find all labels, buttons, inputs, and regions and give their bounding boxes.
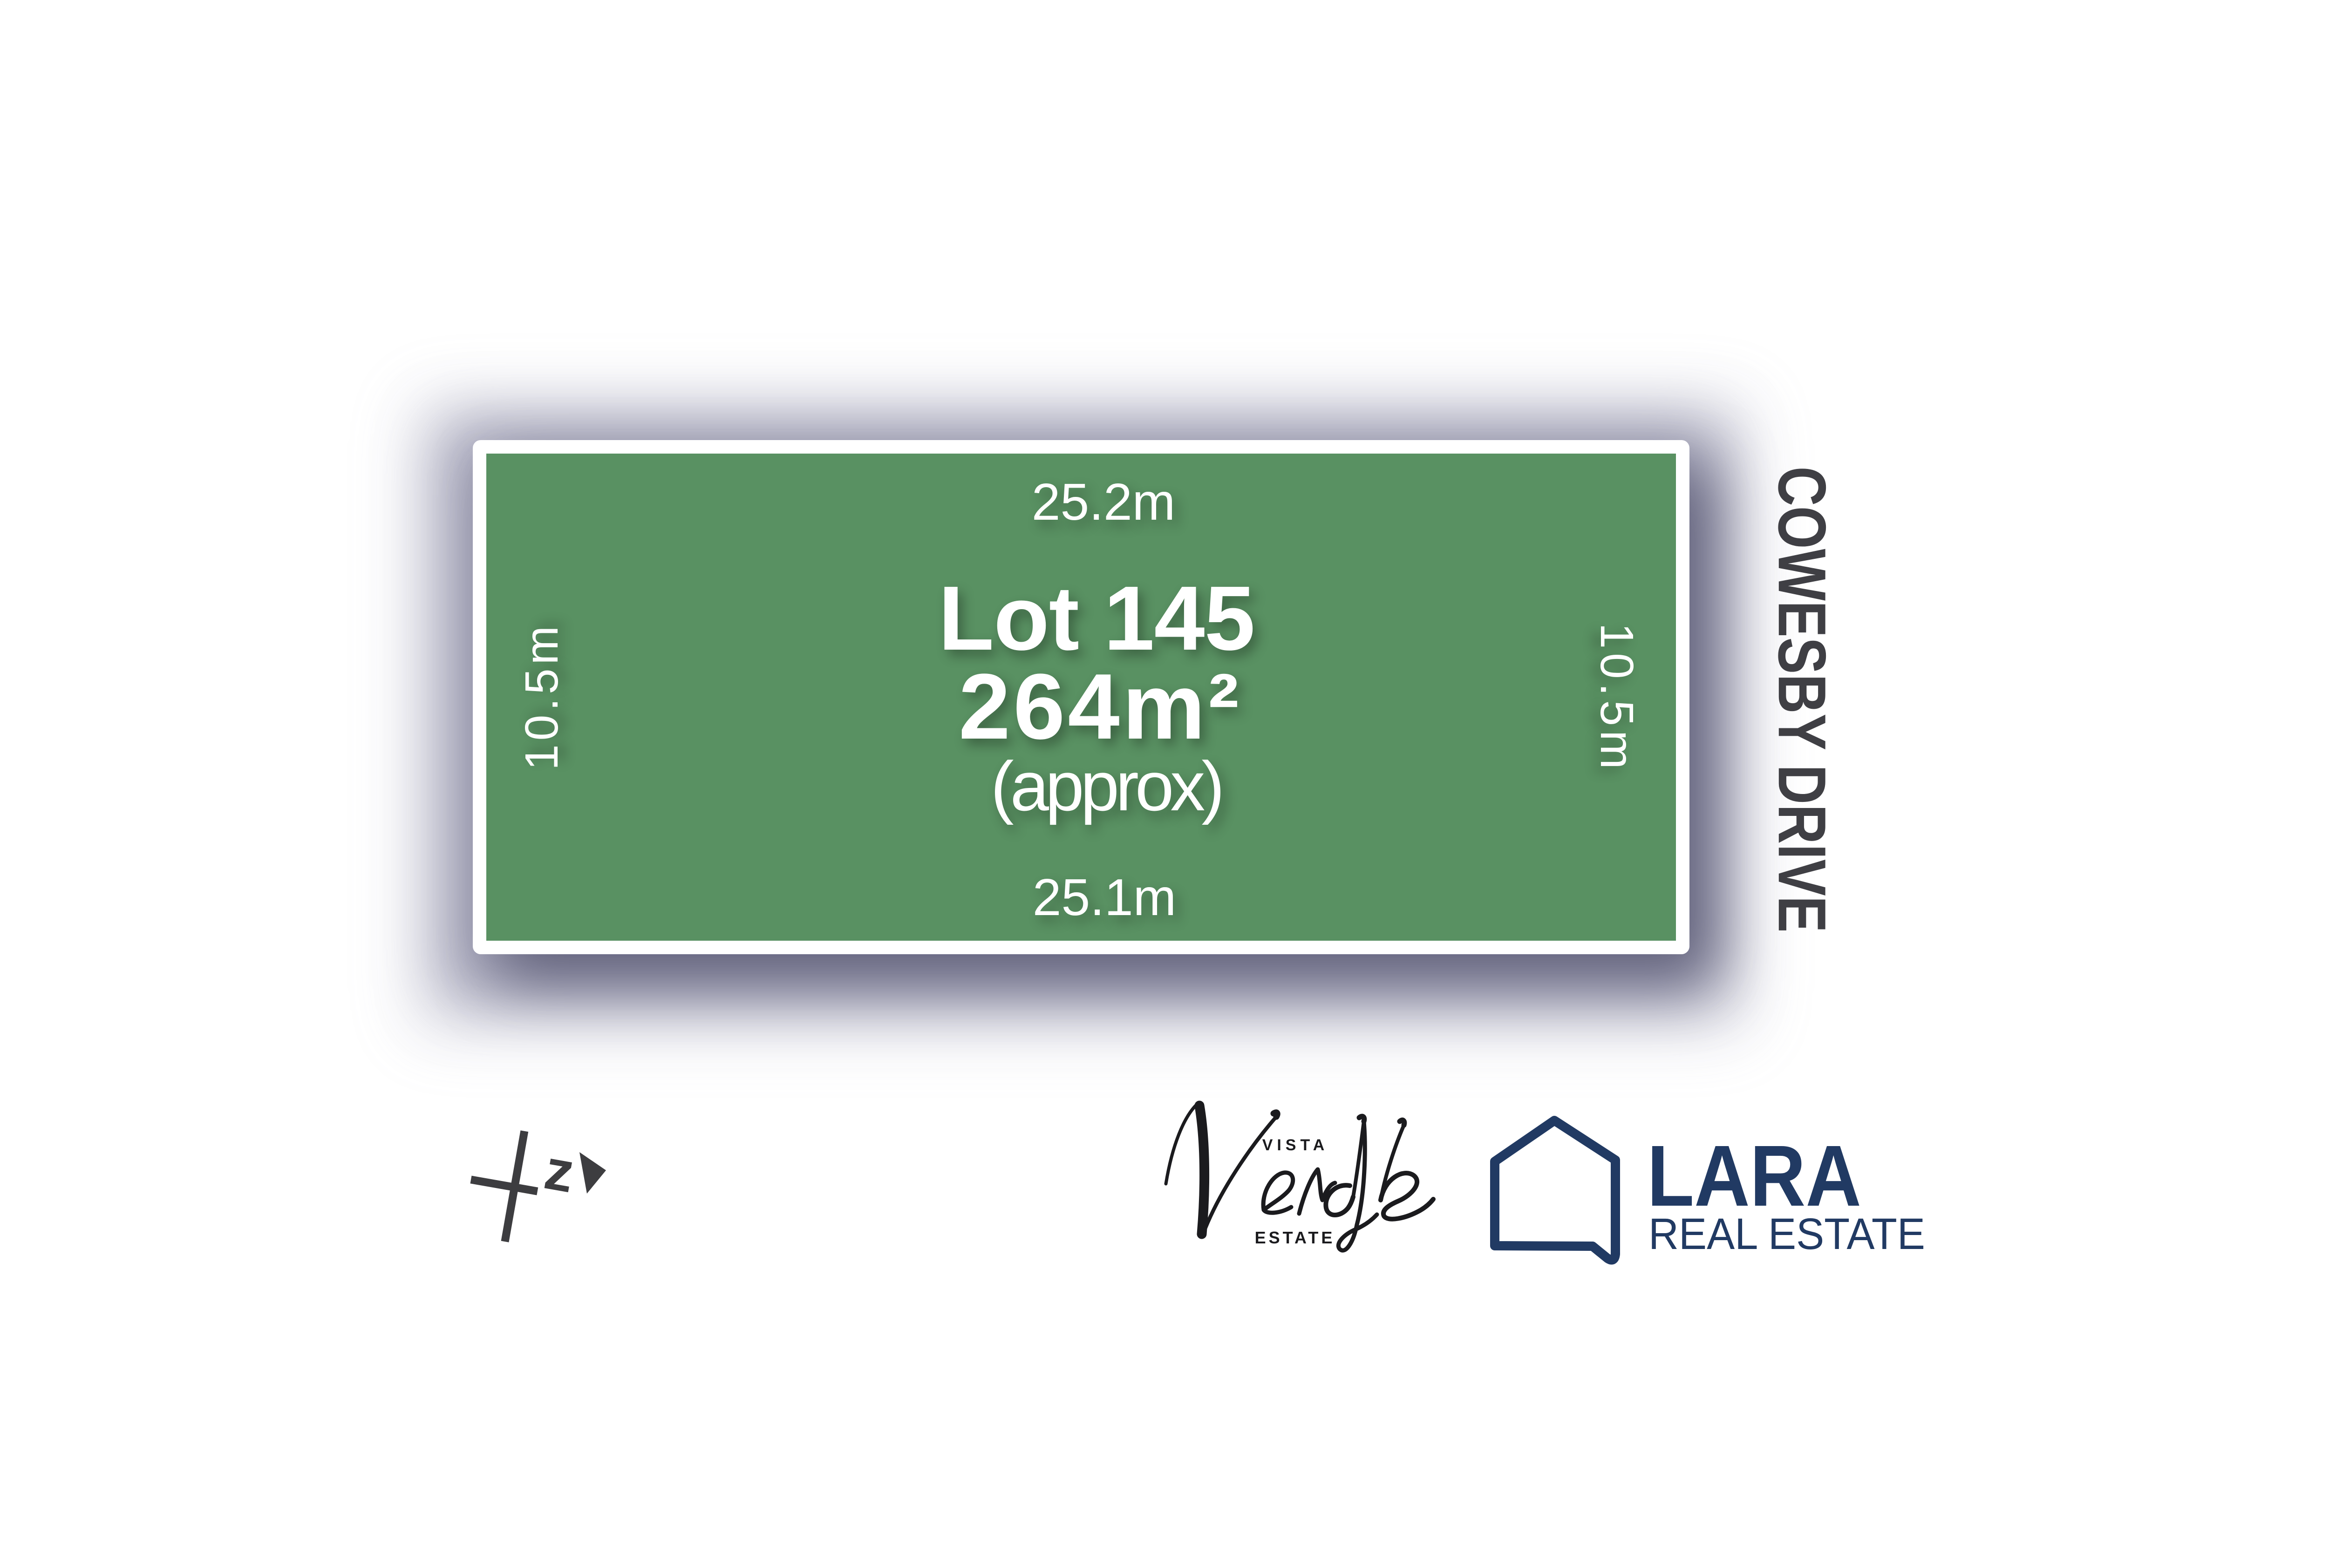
- svg-text:ESTATE: ESTATE: [1255, 1228, 1335, 1247]
- svg-text:VISTA: VISTA: [1262, 1136, 1329, 1154]
- svg-text:REAL ESTATE: REAL ESTATE: [1648, 1209, 1925, 1259]
- svg-text:z: z: [540, 1137, 579, 1205]
